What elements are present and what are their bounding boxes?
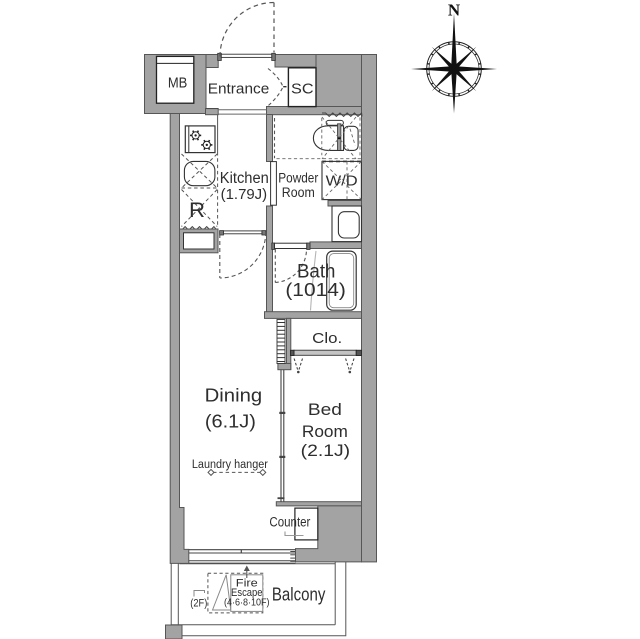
- svg-text:(6.1J): (6.1J): [205, 412, 256, 432]
- svg-text:Dining: Dining: [205, 385, 263, 406]
- svg-text:Entrance: Entrance: [208, 82, 270, 98]
- svg-text:R: R: [189, 199, 205, 222]
- svg-text:Counter: Counter: [269, 515, 310, 530]
- svg-text:(4·6·8·10F): (4·6·8·10F): [224, 596, 270, 608]
- svg-text:Bed: Bed: [308, 400, 342, 419]
- svg-text:(2.1J): (2.1J): [301, 441, 351, 460]
- svg-text:MB: MB: [168, 76, 188, 92]
- svg-text:Balcony: Balcony: [272, 584, 326, 604]
- svg-text:(2F): (2F): [190, 597, 207, 609]
- svg-text:Room: Room: [302, 422, 348, 441]
- svg-text:Laundry hanger: Laundry hanger: [192, 459, 268, 471]
- svg-text:(1.79J): (1.79J): [221, 187, 268, 203]
- svg-text:SC: SC: [291, 81, 314, 98]
- svg-text:Room: Room: [282, 184, 315, 200]
- svg-text:Clo.: Clo.: [312, 330, 342, 347]
- svg-text:Kitchen: Kitchen: [220, 170, 269, 187]
- svg-text:W/D: W/D: [326, 173, 358, 189]
- svg-text:N: N: [448, 1, 461, 20]
- svg-text:(1014): (1014): [285, 279, 346, 300]
